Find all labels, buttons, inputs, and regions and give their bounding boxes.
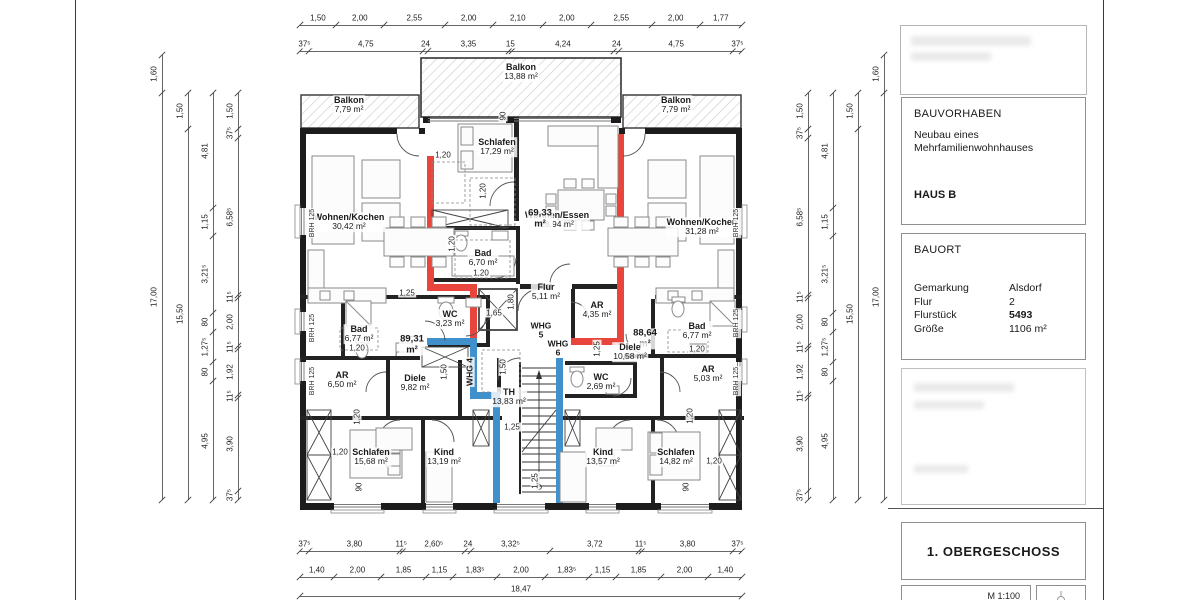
- secondary-stamp-box: [901, 368, 1086, 505]
- redacted-content: [914, 383, 1014, 392]
- bauort-title: BAUORT: [914, 244, 1073, 256]
- bauort-key: Gemarkung: [914, 282, 1009, 296]
- redacted-content: [911, 36, 1031, 46]
- floor-plan-sheet: Balkon13,88 m²Balkon7,79 m²Balkon7,79 m²…: [0, 0, 1200, 600]
- architect-stamp-box: [900, 25, 1087, 95]
- project-line-2: Mehrfamilienwohnhauses: [914, 142, 1073, 155]
- bauort-row: Flur2: [914, 296, 1073, 310]
- haus-label: HAUS B: [914, 189, 1073, 201]
- project-line-1: Neubau eines: [914, 129, 1073, 142]
- balconies: [301, 58, 741, 128]
- bauort-key: Flurstück: [914, 309, 1009, 323]
- staircase: [522, 368, 556, 492]
- redacted-content: [914, 401, 984, 409]
- bauort-row: Größe1106 m²: [914, 323, 1073, 337]
- bauort-value: 2: [1009, 296, 1015, 310]
- bauvorhaben-title: BAUVORHABEN: [914, 108, 1073, 120]
- bauort-table: GemarkungAlsdorfFlur2Flurstück5493Größe1…: [914, 282, 1073, 337]
- bauvorhaben-box: BAUVORHABEN Neubau eines Mehrfamilienwoh…: [901, 97, 1086, 225]
- redacted-content: [914, 465, 968, 473]
- drawing-title-box: 1. OBERGESCHOSS: [901, 522, 1086, 580]
- bauort-row: Flurstück5493: [914, 309, 1073, 323]
- bauort-box: BAUORT GemarkungAlsdorfFlur2Flurstück549…: [901, 233, 1086, 360]
- redacted-content: [911, 52, 991, 61]
- scale-label: M 1:100: [987, 591, 1020, 600]
- bauort-value: 5493: [1009, 309, 1032, 323]
- bauort-key: Größe: [914, 323, 1009, 337]
- scale-box: M 1:100: [901, 585, 1031, 600]
- bauort-row: GemarkungAlsdorf: [914, 282, 1073, 296]
- bauort-key: Flur: [914, 296, 1009, 310]
- bauort-value: 1106 m²: [1009, 323, 1047, 337]
- title-block-divider: [888, 508, 1103, 509]
- bauort-value: Alsdorf: [1009, 282, 1042, 296]
- drawing-title: 1. OBERGESCHOSS: [927, 544, 1060, 559]
- north-arrow-icon: [1051, 590, 1071, 600]
- north-arrow-box: [1036, 585, 1086, 600]
